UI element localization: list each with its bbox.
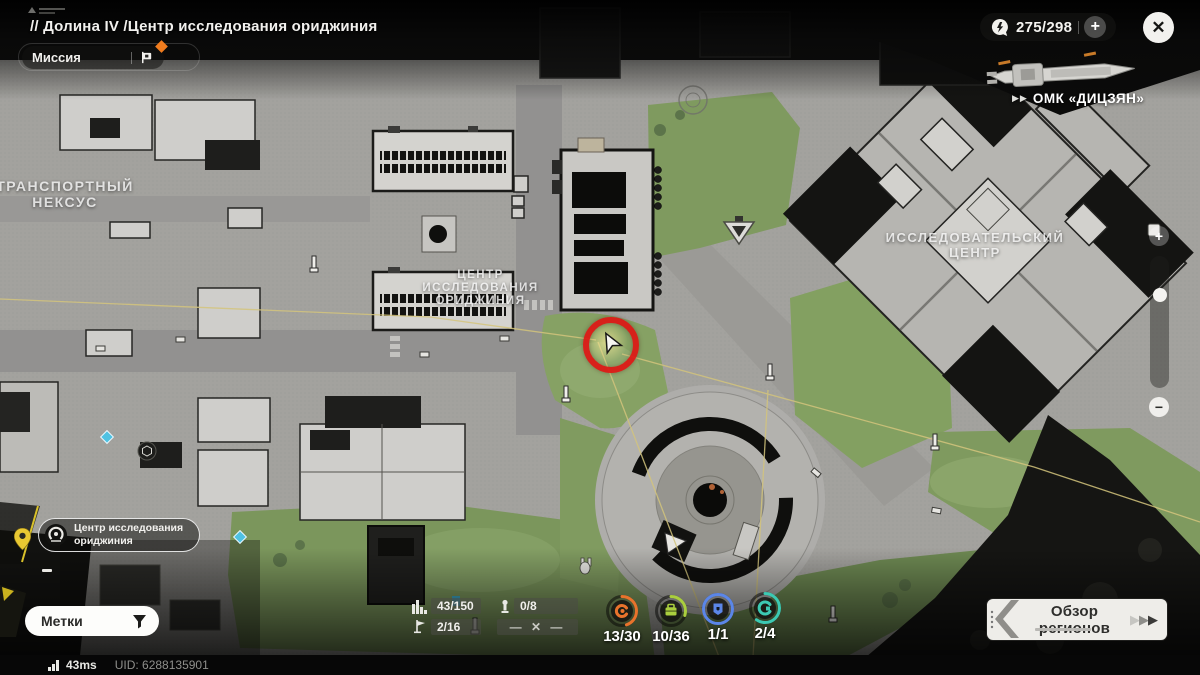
collectible-count: 13/30 <box>598 628 646 645</box>
status-bar: 43ms UID: 6288135901 <box>0 655 1200 675</box>
map-label-research-center: ИССЛЕДОВАТЕЛЬСКИЙ ЦЕНТР <box>885 231 1065 261</box>
stat-totem-value: 0/8 <box>514 598 578 614</box>
mission-label: Миссия <box>32 50 124 65</box>
markers-label: Метки <box>41 613 132 629</box>
ship-label-arrows: ▶▶ <box>1012 93 1028 103</box>
ship-label: ▶▶ОМК «ДИЦЗЯН» <box>1012 90 1144 108</box>
red-circle-marker <box>583 317 639 373</box>
logo-mark <box>28 6 88 18</box>
collectible-counter-cache: 2/4 <box>741 590 789 642</box>
zoom-out-button[interactable]: − <box>1149 397 1169 417</box>
collectible-counter-originium: 13/30 <box>598 593 646 645</box>
arena <box>602 392 818 608</box>
divider <box>131 52 132 64</box>
region-subtext-decor <box>1035 628 1091 631</box>
region-icon <box>44 523 68 547</box>
zoom-slider-handle[interactable] <box>1153 288 1167 302</box>
mission-flag-icon <box>139 50 154 65</box>
uid-value: UID: 6288135901 <box>115 658 209 672</box>
ship-name: ОМК «ДИЦЗЯН» <box>1033 91 1145 106</box>
collectible-counter-supply-case: 10/36 <box>647 593 695 645</box>
close-button[interactable]: ✕ <box>1143 12 1174 43</box>
map-label-transport-nexus: ТРАНСПОРТНЫЙ НЕКСУС <box>0 178 160 210</box>
region-overview-label: Обзор регионов <box>1025 603 1124 637</box>
collectible-count: 10/36 <box>647 628 695 645</box>
game-map-screen: ТРАНСПОРТНЫЙ НЕКСУС ЦЕНТР ИССЛЕДОВАНИЯ О… <box>0 0 1200 675</box>
bars-icon <box>412 599 428 614</box>
triple-arrow-icon: ▶▶▶ <box>1130 612 1157 628</box>
region-overview-button[interactable]: Обзор регионов ▶▶▶ <box>986 598 1168 641</box>
ship-graphic <box>985 50 1147 94</box>
tracked-objective-pill[interactable]: Центр исследования ориджиния <box>38 518 200 552</box>
energy-count: 275/298 <box>1016 19 1072 36</box>
ping-value: 43ms <box>66 658 97 672</box>
zoom-in-button[interactable]: + <box>1149 226 1169 246</box>
flag-icon <box>413 619 427 634</box>
chevron-left-decor <box>987 598 1021 641</box>
corner-decor <box>0 585 26 640</box>
zoom-slider-track[interactable] <box>1150 256 1169 388</box>
breadcrumb: // Долина IV /Центр исследования ориджин… <box>30 18 377 35</box>
energy-add-button[interactable]: + <box>1084 16 1106 38</box>
map-label-originium-center: ЦЕНТР ИССЛЕДОВАНИЯ ОРИДЖИНИЯ <box>408 269 553 309</box>
energy-pill: 275/298 + <box>980 13 1116 41</box>
objective-pin-icon <box>14 528 31 551</box>
objective-dash-decor <box>42 569 52 572</box>
stat-flag-value: 2/16 <box>431 619 481 635</box>
stat-locked-value: — ✕ — <box>497 619 578 635</box>
ping-icon <box>48 660 60 671</box>
filter-icon <box>132 614 147 629</box>
divider <box>1078 21 1079 34</box>
collectible-count: 2/4 <box>741 625 789 642</box>
markers-filter-button[interactable]: Метки <box>25 606 159 636</box>
mission-button[interactable]: Миссия <box>22 46 164 69</box>
stat-bars-value: 43/150 <box>431 598 481 614</box>
collectible-count: 1/1 <box>694 626 742 643</box>
totem-icon <box>499 599 511 614</box>
collectible-counter-banner: 1/1 <box>694 591 742 643</box>
energy-icon <box>990 18 1010 37</box>
objective-title: Центр исследования ориджиния <box>74 522 191 547</box>
